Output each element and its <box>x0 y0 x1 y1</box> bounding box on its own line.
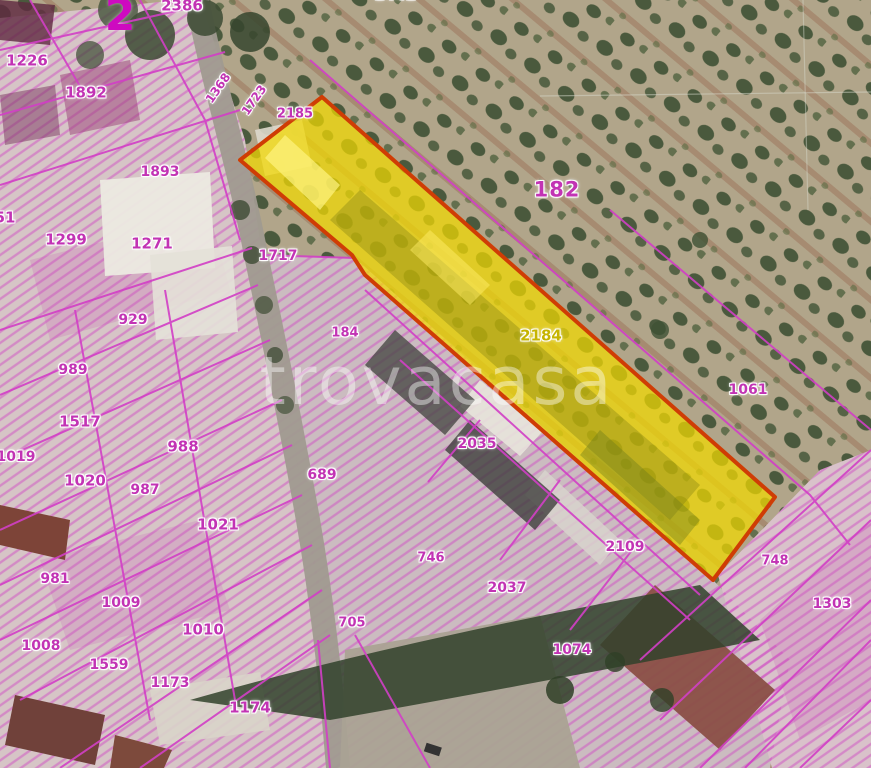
cadastral-map: 2386214411226189213681723218518935112991… <box>0 0 871 768</box>
watermark: trovacasa <box>260 342 615 420</box>
